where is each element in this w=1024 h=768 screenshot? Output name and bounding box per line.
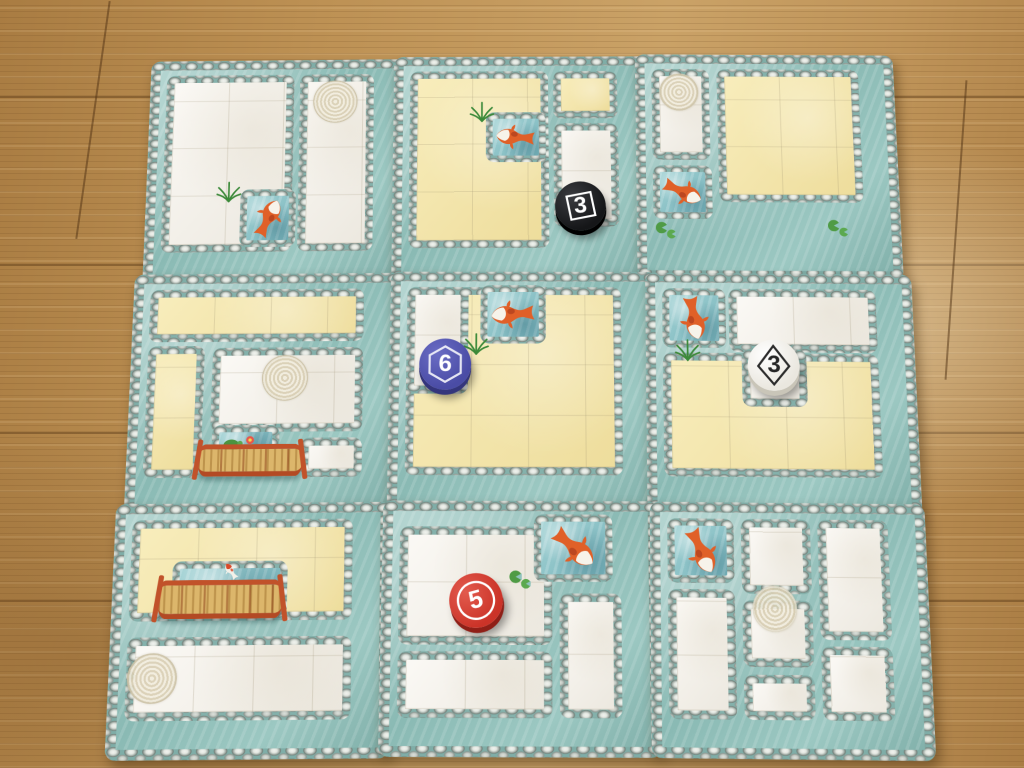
lily-pads: [508, 569, 533, 595]
score-token-black-3[interactable]: 3: [553, 179, 609, 232]
lily-pads: [826, 218, 850, 242]
koi-fish-icon: [662, 512, 740, 590]
garden-tile[interactable]: [124, 273, 401, 515]
koi-pond: [239, 189, 295, 247]
koi-fish-icon: [649, 160, 716, 225]
garden-patch-white: [668, 588, 738, 719]
tile-grid: 3635: [111, 59, 913, 734]
garden-tile[interactable]: 3: [645, 273, 923, 516]
garden-patch-white: [744, 674, 816, 721]
koi-fish-icon: [530, 505, 616, 592]
token-number: 3: [553, 179, 609, 232]
lily-pad-icon: [654, 220, 678, 239]
score-token-white-3[interactable]: 3: [748, 339, 801, 391]
lily-pad-icon: [508, 569, 533, 590]
koi-pond: [534, 514, 613, 581]
koi-pond: [653, 165, 713, 218]
garden-patch-yellow: [148, 288, 364, 341]
lily-pad-icon: [826, 218, 850, 237]
garden-patch-white: [396, 651, 553, 718]
garden-tile[interactable]: [104, 502, 391, 761]
score-token-blue-6[interactable]: 6: [419, 338, 471, 389]
reed-plant-icon: [468, 97, 495, 123]
token-number: 6: [419, 338, 471, 389]
wooden-bridge: [157, 579, 283, 619]
raked-sand-circle: [752, 585, 798, 632]
reed-plant: [468, 97, 495, 127]
reed-plant-icon: [673, 333, 701, 361]
token-number: 3: [748, 339, 801, 391]
garden-tile[interactable]: [635, 54, 904, 281]
garden-patch-white: [821, 647, 896, 722]
wooden-bridge: [197, 443, 303, 476]
garden-patch-yellow: [553, 71, 618, 118]
reed-plant: [673, 333, 701, 366]
koi-fish-icon: [484, 285, 543, 343]
koi-fish-icon: [490, 112, 542, 162]
reed-plant-icon: [215, 177, 243, 204]
garden-patch-white: [741, 519, 812, 594]
garden-tile[interactable]: [650, 501, 937, 761]
tabletop-photo-scene: 3635: [0, 0, 1024, 768]
garden-patch-yellow: [716, 69, 864, 203]
koi-pond: [667, 518, 735, 583]
garden-patch-white: [817, 520, 892, 641]
koi-fish-icon: [234, 186, 302, 251]
garden-tile[interactable]: [142, 59, 409, 287]
garden-patch-white: [560, 593, 623, 718]
lily-pads: [654, 220, 678, 244]
garden-tile[interactable]: 5: [378, 500, 662, 758]
reed-plant: [215, 177, 243, 208]
garden-tile[interactable]: 3: [391, 56, 657, 282]
garden-patch-white: [300, 437, 362, 477]
garden-tile[interactable]: 6: [387, 272, 662, 513]
